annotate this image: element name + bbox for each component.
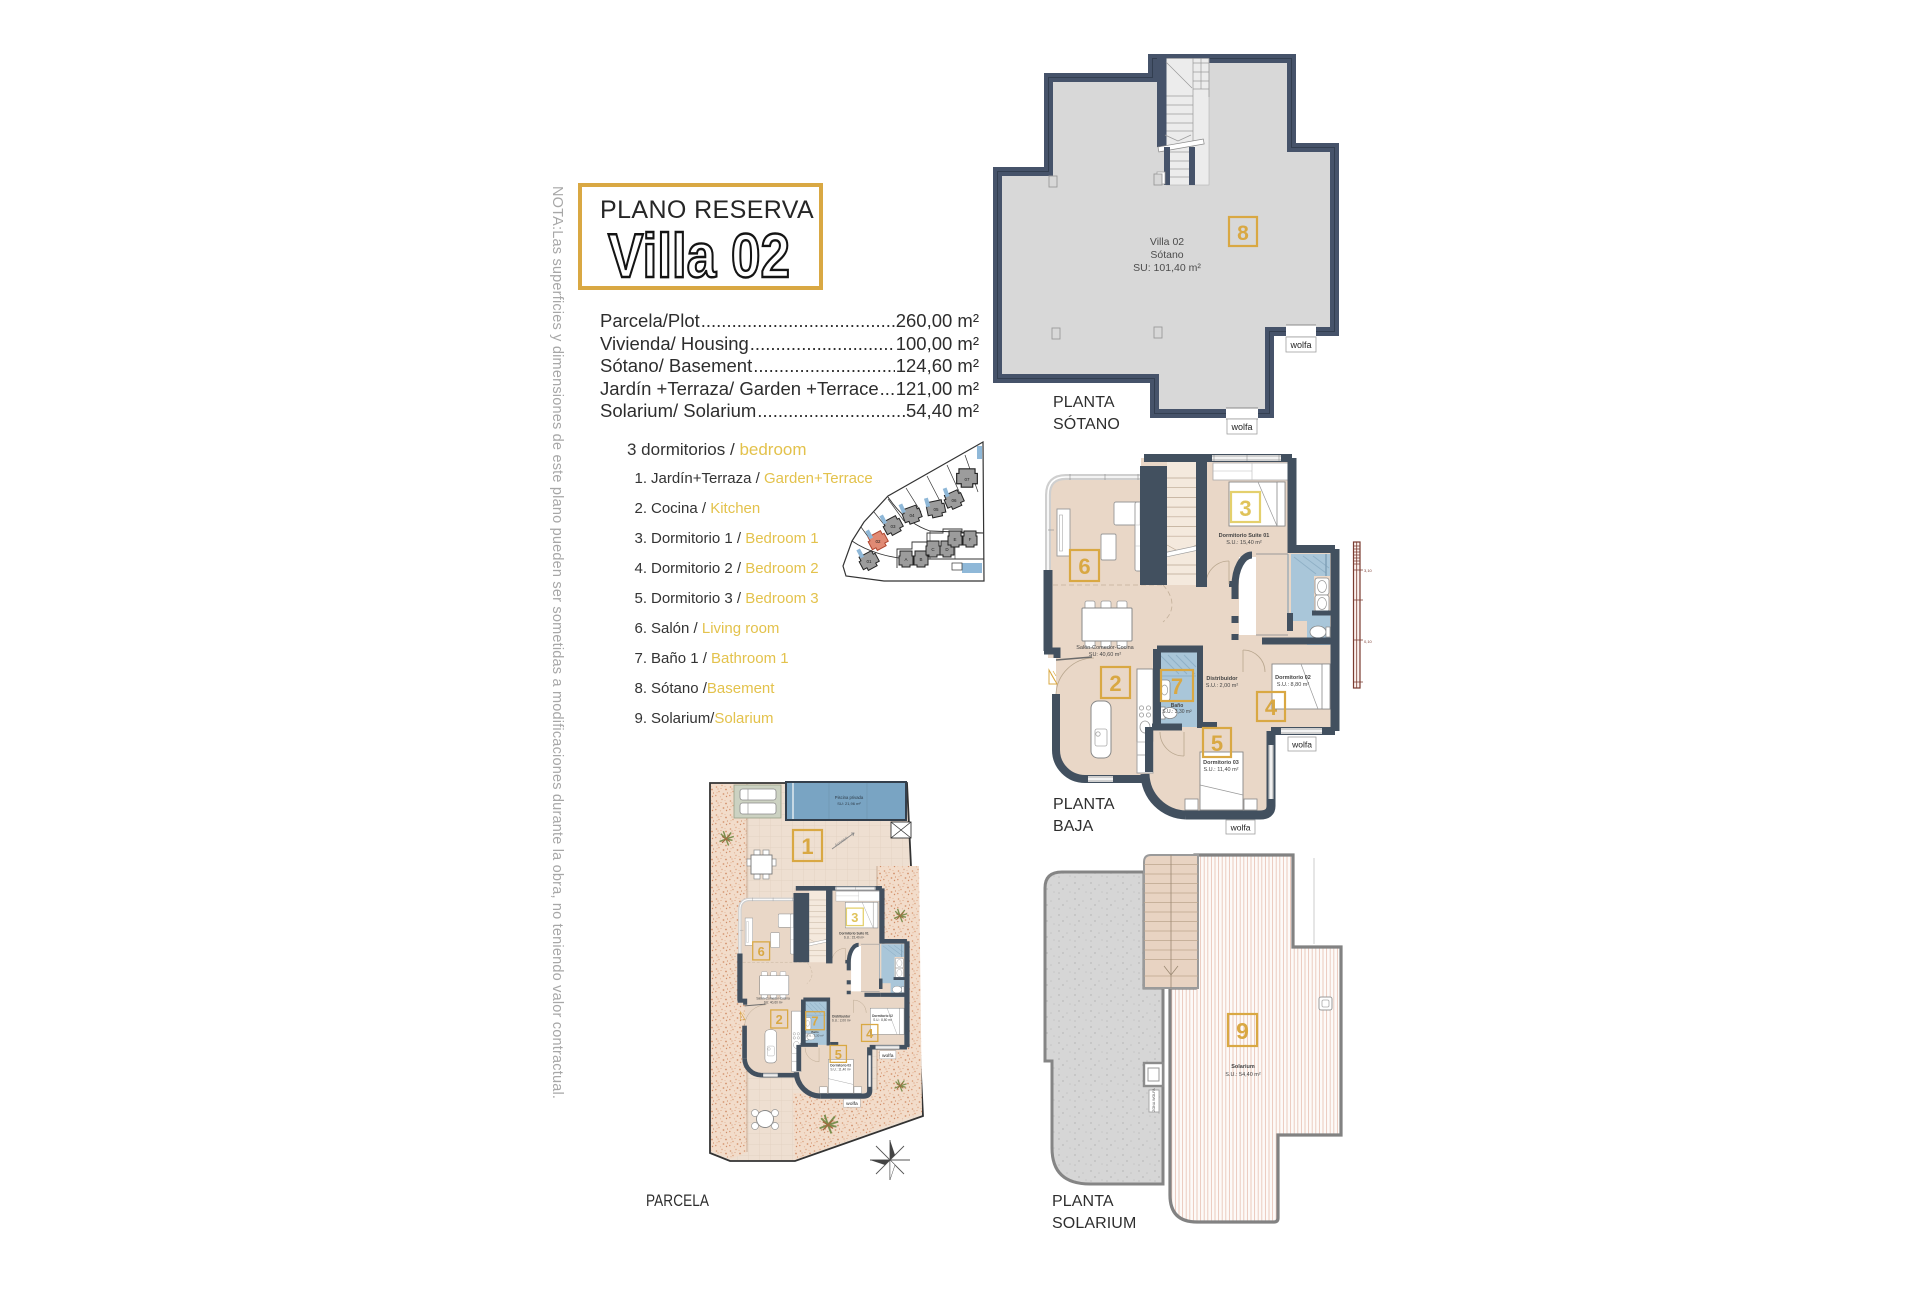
- svg-text:wolfa: wolfa: [1230, 422, 1252, 432]
- svg-text:3,10: 3,10: [1364, 568, 1373, 573]
- svg-text:04: 04: [909, 513, 915, 518]
- svg-text:S.U.: 2,00 m²: S.U.: 2,00 m²: [1206, 683, 1239, 689]
- svg-text:7: 7: [1171, 674, 1183, 699]
- svg-text:E: E: [953, 537, 956, 542]
- svg-text:2: 2: [1109, 671, 1121, 696]
- svg-text:Distribuidor: Distribuidor: [1206, 676, 1238, 682]
- svg-text:Dormitorio 02: Dormitorio 02: [1275, 675, 1311, 681]
- svg-text:Dormitorio 03: Dormitorio 03: [1203, 760, 1239, 766]
- svg-text:02: 02: [875, 539, 881, 544]
- svg-text:05: 05: [933, 507, 939, 512]
- svg-text:S.U.: 11,40 m²: S.U.: 11,40 m²: [1203, 767, 1238, 773]
- svg-text:6: 6: [1078, 554, 1090, 579]
- svg-text:06: 06: [951, 498, 957, 503]
- svg-text:Piscina privada: Piscina privada: [835, 795, 864, 800]
- svg-text:ZONA WOLFA: ZONA WOLFA: [1152, 1088, 1156, 1112]
- svg-text:1: 1: [801, 834, 813, 859]
- svg-text:3: 3: [1239, 496, 1251, 521]
- svg-text:SU: 40,60 m²: SU: 40,60 m²: [1089, 652, 1122, 658]
- svg-text:wolfa: wolfa: [1291, 740, 1312, 750]
- svg-text:03: 03: [890, 524, 896, 529]
- svg-text:S.U.: 15,40 m²: S.U.: 15,40 m²: [1226, 540, 1262, 546]
- svg-text:Solarium: Solarium: [1231, 1064, 1255, 1070]
- svg-text:S.U.: 8,80 m²: S.U.: 8,80 m²: [1277, 682, 1310, 688]
- svg-text:5: 5: [1211, 731, 1223, 756]
- svg-text:Dormitorio Suite 01: Dormitorio Suite 01: [1219, 533, 1270, 539]
- svg-text:4: 4: [1265, 695, 1278, 720]
- svg-text:9: 9: [1236, 1018, 1249, 1044]
- svg-text:wolfa: wolfa: [1289, 340, 1311, 350]
- svg-text:B: B: [919, 557, 922, 562]
- svg-text:8: 8: [1237, 222, 1249, 245]
- svg-text:Sótano: Sótano: [1150, 249, 1183, 261]
- svg-text:Salón-Comedor-Cocina: Salón-Comedor-Cocina: [1076, 645, 1134, 651]
- svg-text:Villa 02: Villa 02: [1150, 236, 1184, 248]
- svg-text:SU: 21,96 m²: SU: 21,96 m²: [837, 801, 861, 806]
- svg-text:07: 07: [964, 477, 970, 482]
- svg-text:S.U.: 54,40 m²: S.U.: 54,40 m²: [1225, 1072, 1261, 1078]
- svg-text:A: A: [904, 557, 907, 562]
- svg-text:wolfa: wolfa: [1230, 823, 1251, 833]
- svg-text:F: F: [969, 537, 972, 542]
- svg-text:S.U.: 3,30 m²: S.U.: 3,30 m²: [1162, 709, 1192, 715]
- svg-text:01: 01: [866, 559, 872, 564]
- svg-text:SU: 101,40 m²: SU: 101,40 m²: [1133, 262, 1201, 274]
- svg-text:0,10: 0,10: [1364, 639, 1373, 644]
